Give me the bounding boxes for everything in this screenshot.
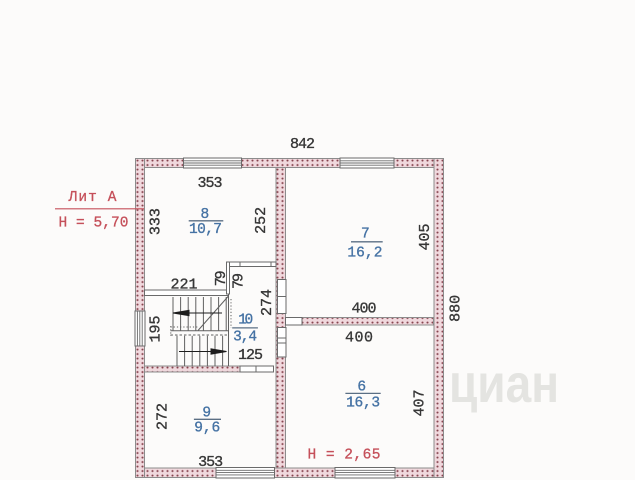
svg-text:7: 7 xyxy=(361,227,370,243)
svg-text:Н = 2,65: Н = 2,65 xyxy=(308,448,381,464)
svg-text:353: 353 xyxy=(198,454,223,471)
svg-text:79: 79 xyxy=(213,270,230,286)
svg-text:Н = 5,70: Н = 5,70 xyxy=(59,216,129,232)
svg-text:405: 405 xyxy=(417,224,434,251)
svg-text:Лит А: Лит А xyxy=(68,190,117,206)
svg-text:9,6: 9,6 xyxy=(194,421,220,437)
svg-text:272: 272 xyxy=(155,403,172,430)
svg-text:252: 252 xyxy=(253,207,270,234)
svg-text:3,4: 3,4 xyxy=(233,330,257,346)
svg-text:400: 400 xyxy=(352,301,377,318)
svg-text:400: 400 xyxy=(345,330,373,347)
svg-text:10,7: 10,7 xyxy=(189,222,222,238)
svg-text:353: 353 xyxy=(198,175,223,192)
svg-text:274: 274 xyxy=(259,289,276,316)
svg-text:333: 333 xyxy=(148,208,165,235)
svg-text:10: 10 xyxy=(238,313,253,329)
svg-text:880: 880 xyxy=(448,295,465,322)
svg-text:16,2: 16,2 xyxy=(347,246,382,262)
svg-text:16,3: 16,3 xyxy=(346,396,380,412)
svg-text:221: 221 xyxy=(171,277,198,294)
svg-text:407: 407 xyxy=(412,390,429,417)
svg-text:79: 79 xyxy=(231,273,248,289)
svg-text:842: 842 xyxy=(290,136,315,153)
svg-text:циан: циан xyxy=(449,354,559,414)
svg-text:125: 125 xyxy=(238,347,263,364)
svg-text:195: 195 xyxy=(148,316,165,343)
